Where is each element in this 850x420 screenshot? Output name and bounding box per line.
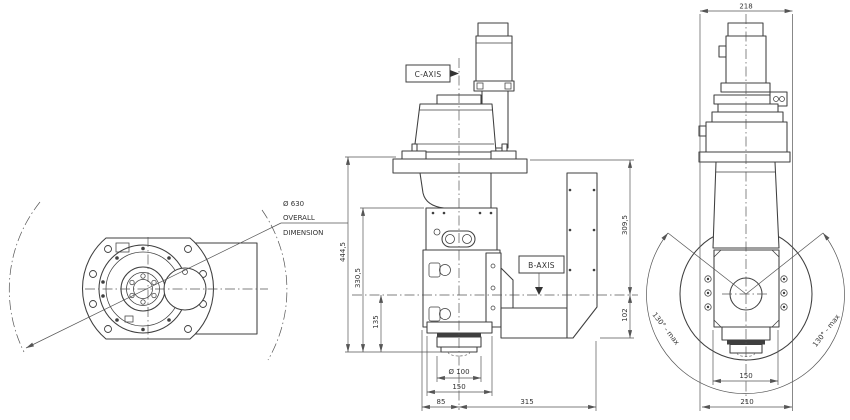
rear-view: Ø 630 OVERALL DIMENSION — [9, 200, 348, 360]
dim-baxis-to-face: 135 — [372, 315, 380, 328]
c-axis-label: C-AXIS — [415, 70, 442, 79]
dim-right-span: 315 — [520, 398, 533, 406]
dim-total-height: 444,5 — [339, 242, 347, 262]
dim-baxis-to-bottom: 102 — [621, 308, 629, 321]
b-axis-callout: B-AXIS — [519, 256, 564, 295]
overall-dimension-word2: DIMENSION — [283, 229, 323, 237]
front-view: 444,5 330,5 135 309,5 102 Ø 100 150 85 3… — [339, 23, 638, 411]
front-head-upper — [426, 208, 497, 250]
dim-body-width: 210 — [740, 398, 753, 406]
overall-dimension-word1: OVERALL — [283, 214, 315, 222]
c-axis-callout: C-AXIS — [406, 65, 459, 82]
dim-head-height: 330,5 — [354, 268, 362, 288]
dim-nose-width-front: 150 — [452, 383, 465, 391]
side-view: 130° - max 130° - max 218 150 210 — [647, 3, 845, 412]
drawing-svg: Ø 630 OVERALL DIMENSION — [0, 0, 850, 420]
front-c-axis-unit — [414, 95, 496, 152]
side-motor — [719, 23, 770, 92]
swing-circle-arc-left — [9, 202, 40, 352]
swing-left-label: 130° - max — [650, 311, 680, 347]
overall-dimension-value: Ø 630 — [283, 200, 304, 208]
dim-nose-width-side: 150 — [739, 372, 752, 380]
b-axis-label: B-AXIS — [528, 261, 555, 270]
swing-right-label: 130° - max — [811, 313, 841, 349]
dim-spindle-diameter: Ø 100 — [448, 368, 469, 376]
front-spindle-nose — [427, 322, 492, 356]
front-neck — [420, 173, 491, 208]
technical-drawing-sheet: Ø 630 OVERALL DIMENSION — [0, 0, 850, 420]
dim-left-span: 85 — [437, 398, 446, 406]
side-c-axis-unit — [699, 92, 790, 162]
dim-top-width: 218 — [739, 3, 752, 11]
dim-flange-to-baxis: 309,5 — [621, 215, 629, 235]
